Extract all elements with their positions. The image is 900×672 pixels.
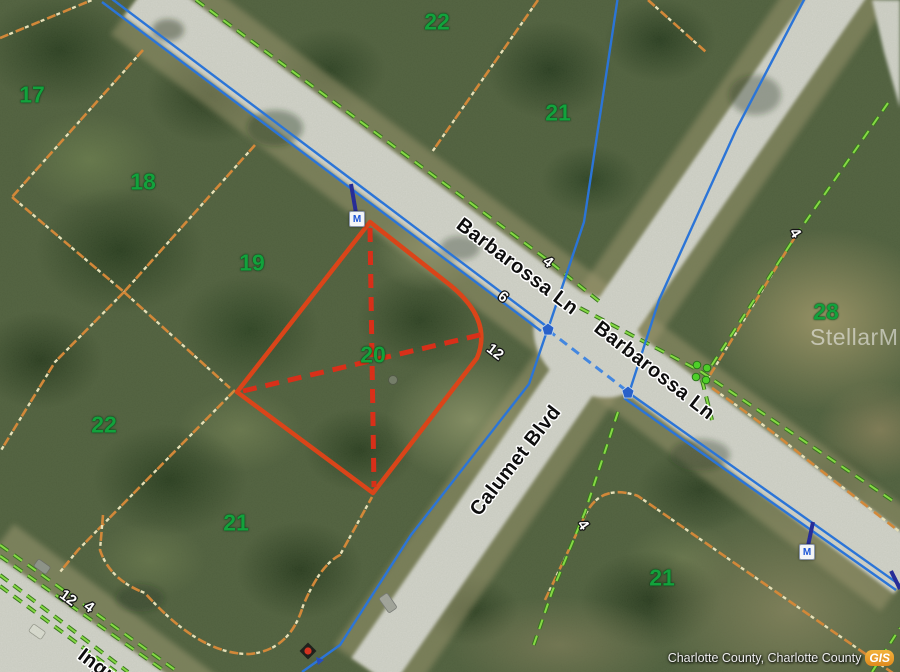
lot-label-21-top: 21 (545, 100, 571, 127)
gis-map-canvas[interactable]: 17 18 19 22 21 20 22 21 28 21 Barbarossa… (0, 0, 900, 672)
lot-label-17: 17 (19, 82, 45, 109)
image-noise (0, 0, 900, 672)
lot-label-21-left: 21 (223, 510, 249, 537)
lot-label-20-highlighted: 20 (360, 342, 386, 369)
lot-label-18: 18 (130, 169, 156, 196)
water-meter-icon: M (799, 544, 815, 560)
map-attribution: Charlotte County, Charlotte County GIS (668, 650, 894, 666)
gis-logo-badge: GIS (865, 650, 894, 666)
lot-label-22-top: 22 (424, 9, 450, 36)
lot-label-19: 19 (239, 250, 265, 277)
water-meter-icon: M (349, 211, 365, 227)
attribution-text: Charlotte County, Charlotte County (668, 651, 862, 665)
stellar-mls-watermark: StellarMLS (810, 324, 900, 351)
map-overlay-graphics (0, 0, 900, 672)
lot-label-21-bottom-right: 21 (649, 565, 675, 592)
lot-label-22-left: 22 (91, 412, 117, 439)
lot-label-28: 28 (813, 299, 839, 326)
